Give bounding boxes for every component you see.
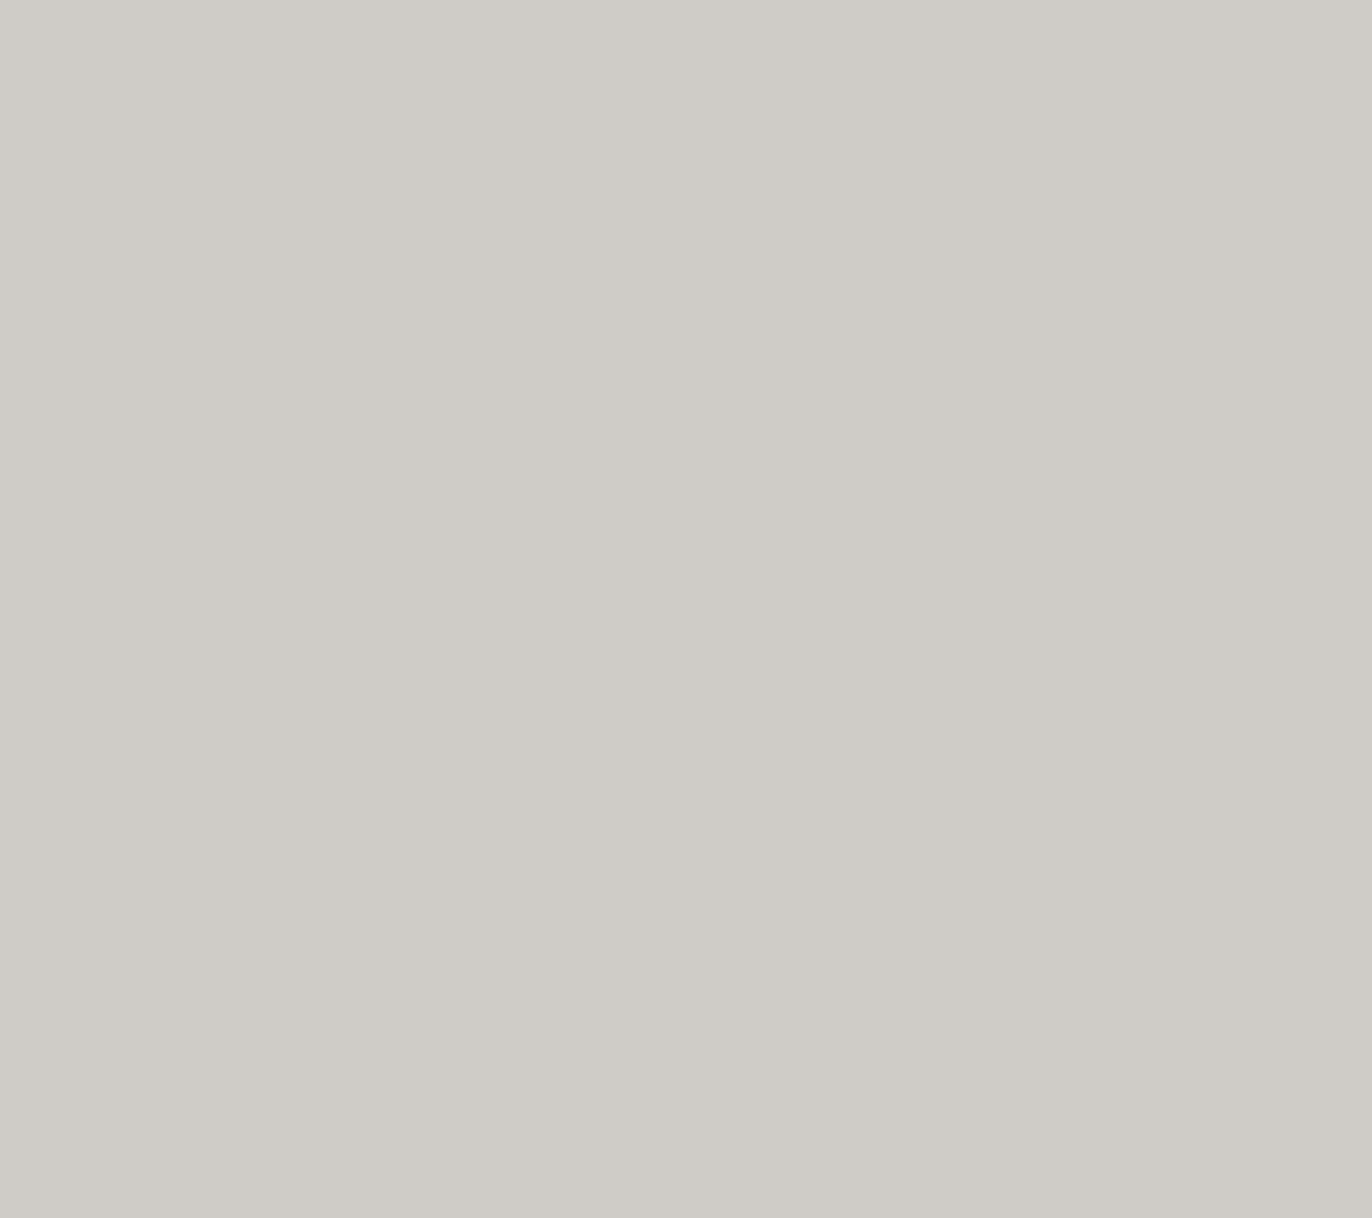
scanned-survey-map-page xyxy=(0,0,1372,1218)
survey-map-canvas xyxy=(0,0,1372,1218)
